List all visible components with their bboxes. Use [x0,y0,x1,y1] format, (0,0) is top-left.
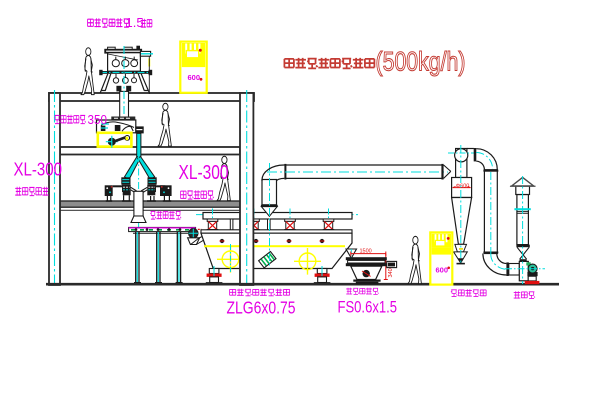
svg-text:340: 340 [388,268,394,277]
svg-text:(500kg/h): (500kg/h) [376,47,466,77]
svg-text:600: 600 [436,266,449,275]
svg-text:XL-300: XL-300 [179,162,229,184]
svg-text:1.5: 1.5 [126,15,144,30]
svg-text:350: 350 [88,112,108,127]
svg-text:ZLG6x0.75: ZLG6x0.75 [227,298,296,318]
svg-text:1500: 1500 [360,249,372,255]
svg-text:Φ600: Φ600 [456,183,470,189]
svg-text:XL-300: XL-300 [14,159,63,180]
svg-text:600: 600 [188,73,201,82]
svg-text:FS0.6x1.5: FS0.6x1.5 [338,298,398,317]
